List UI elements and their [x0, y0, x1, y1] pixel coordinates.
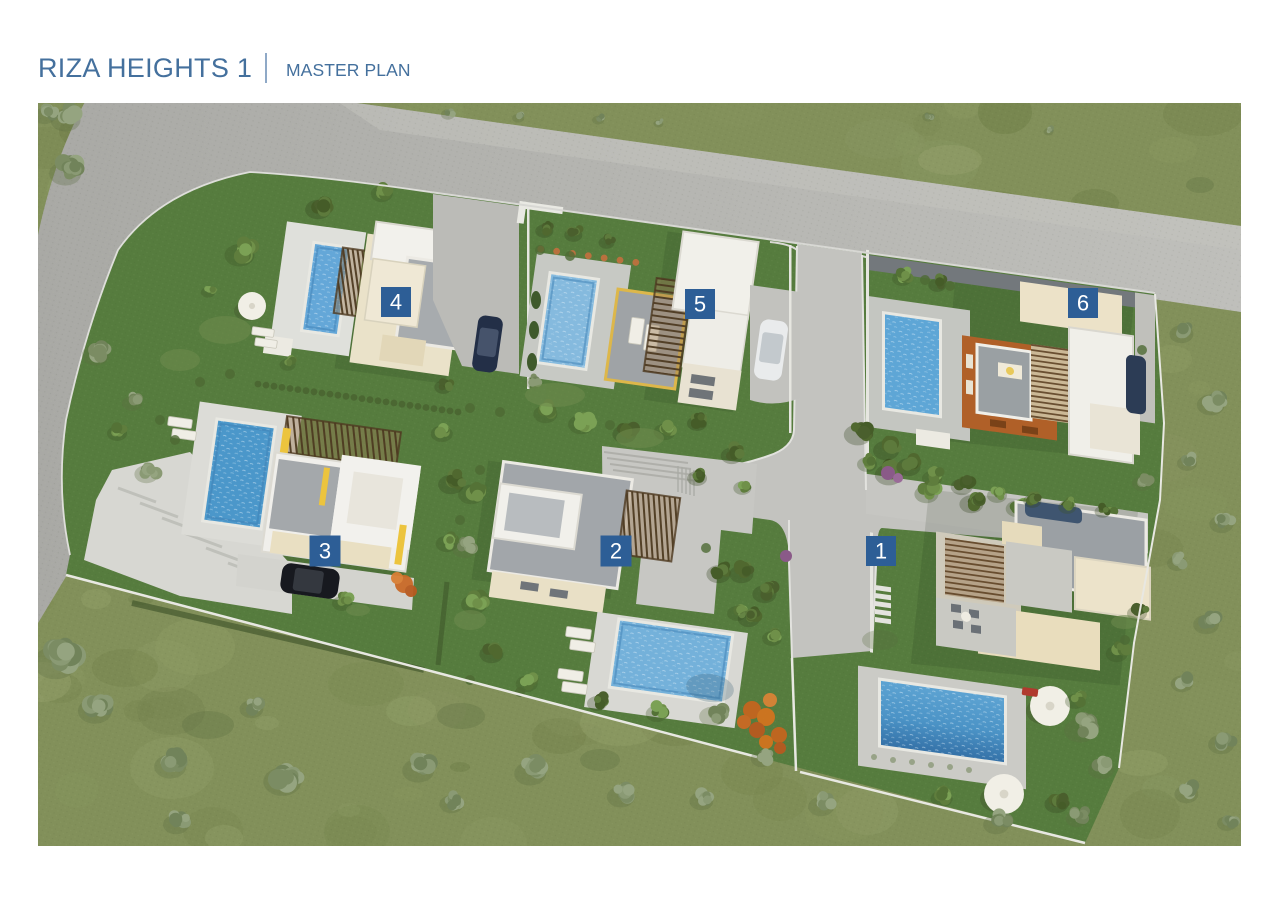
- svg-text:1: 1: [875, 539, 887, 564]
- svg-text:3: 3: [319, 539, 331, 564]
- svg-text:4: 4: [390, 290, 402, 315]
- svg-text:6: 6: [1077, 291, 1089, 316]
- svg-text:2: 2: [610, 539, 622, 564]
- svg-text:5: 5: [694, 292, 706, 317]
